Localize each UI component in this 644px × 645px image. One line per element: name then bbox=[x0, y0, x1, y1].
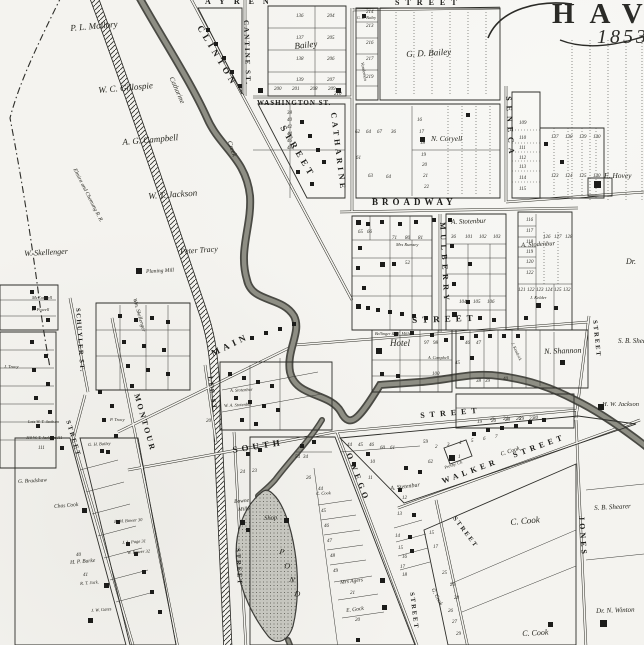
street-canal-east: STREET bbox=[234, 548, 242, 586]
lot-label: 132 bbox=[563, 288, 571, 293]
lot-label: 11 bbox=[368, 476, 373, 481]
street-top-right: STREET bbox=[395, 0, 463, 7]
lot-label: 48 bbox=[287, 146, 292, 151]
lot-label: 27 bbox=[452, 620, 457, 625]
lot-label: 102 bbox=[479, 235, 487, 240]
lot-label: 201 bbox=[292, 87, 300, 92]
owner-c-cook-south: C. Cook bbox=[522, 629, 549, 638]
label-g-d-bailey-sm: G. D. Bailey bbox=[357, 17, 376, 21]
lot-label: 123 bbox=[551, 174, 559, 179]
lot-label: 67 bbox=[377, 130, 382, 135]
street-ayren: AYREN bbox=[205, 0, 278, 6]
lot-label: 5 bbox=[471, 439, 474, 444]
lot-label: 122 bbox=[526, 271, 534, 276]
lot-label: 63 bbox=[368, 174, 373, 179]
lot-label: 36 bbox=[451, 235, 456, 240]
lot-label: 110 bbox=[519, 136, 526, 141]
lot-label: 207 bbox=[327, 78, 335, 83]
lot-label: 113 bbox=[519, 165, 526, 170]
lot-label: 119 bbox=[526, 250, 533, 255]
lot-label: 98 bbox=[433, 341, 438, 346]
lot-label: 128 bbox=[565, 235, 573, 240]
lot-label: 13 bbox=[397, 512, 402, 517]
lot-label: 2 bbox=[435, 445, 438, 450]
lot-label: 97 bbox=[424, 341, 429, 346]
label-dr: Dr. bbox=[626, 258, 636, 266]
lot-label: 109 bbox=[519, 121, 527, 126]
lot-label: 204 bbox=[327, 14, 335, 19]
label-j-kelder: J. Kelder bbox=[530, 296, 547, 301]
lot-label: 40 bbox=[503, 377, 508, 382]
lot-label: 200 bbox=[274, 87, 282, 92]
lot-label: 36 bbox=[391, 130, 396, 135]
lot-label: 64 bbox=[366, 130, 371, 135]
lot-label: 3 bbox=[447, 443, 450, 448]
owner-c-cook-pond: C. Cook bbox=[316, 491, 331, 496]
lot-label: 47 bbox=[476, 341, 481, 346]
lot-label: 48 bbox=[330, 554, 335, 559]
label-wt-jackson-110-111: 110 W. T. Jackson 111 bbox=[26, 436, 63, 440]
map-linework bbox=[0, 0, 644, 645]
lot-label: 217 bbox=[366, 57, 374, 62]
lot-label: 112 bbox=[519, 156, 526, 161]
lot-label: 18 bbox=[420, 141, 425, 146]
lot-label: 214 bbox=[366, 10, 374, 15]
lot-label: 44 bbox=[287, 132, 292, 137]
lot-label: 219 bbox=[366, 75, 374, 80]
lot-label: 10 bbox=[370, 460, 375, 465]
lot-label: 20 bbox=[206, 419, 211, 424]
lot-label: 124 bbox=[565, 174, 573, 179]
label-pond-d: D bbox=[294, 590, 301, 599]
lot-label: 12 bbox=[402, 496, 407, 501]
lot-label: 111 bbox=[519, 146, 526, 151]
lot-label: 46 bbox=[324, 524, 329, 529]
lot-label: 46 bbox=[465, 341, 470, 346]
lot-label: 20 bbox=[422, 163, 427, 168]
lot-label: 25 bbox=[442, 571, 447, 576]
lot-label: 137 bbox=[296, 36, 304, 41]
lot-label: 140 bbox=[593, 174, 601, 179]
lot-label: 46 bbox=[287, 139, 292, 144]
lot-label: 26 bbox=[306, 476, 311, 481]
lot-label: 80 bbox=[405, 236, 410, 241]
lot-label: 16 bbox=[417, 118, 422, 123]
lot-label: 17 bbox=[433, 545, 438, 550]
street-cantine: CANTINE ST. bbox=[242, 20, 251, 86]
lot-label: 17 bbox=[400, 565, 405, 570]
label-a-campbell: A. Campbell bbox=[428, 356, 449, 360]
lot-label: 34 bbox=[303, 455, 308, 460]
lot-label: 15 bbox=[398, 546, 403, 551]
lot-label: 138 bbox=[296, 57, 304, 62]
lot-label: 139 bbox=[296, 78, 304, 83]
lot-label: 26 bbox=[448, 609, 453, 614]
lot-label: 29 bbox=[519, 417, 524, 422]
owner-e-hovey: E. Hovey bbox=[604, 172, 631, 180]
lot-label: 140 bbox=[593, 135, 601, 140]
lot-label: 23 bbox=[252, 469, 257, 474]
lot-label: 122 bbox=[527, 288, 535, 293]
lot-label: 120 bbox=[526, 260, 534, 265]
lot-label: 101 bbox=[465, 235, 473, 240]
lot-label: 41 bbox=[83, 573, 88, 578]
lot-label: 40 bbox=[76, 553, 81, 558]
roads-fill bbox=[70, 0, 644, 645]
lot-label: 29 bbox=[456, 632, 461, 637]
lot-label: 38 bbox=[287, 111, 292, 116]
label-mills: Mills bbox=[238, 507, 250, 513]
lot-label: 81 bbox=[418, 236, 423, 241]
lot-label: 123 bbox=[536, 288, 544, 293]
label-pond-o: O bbox=[284, 562, 291, 571]
lot-label: 138 bbox=[565, 135, 573, 140]
lot-label: 62 bbox=[355, 130, 360, 135]
lot-label: 28 bbox=[505, 418, 510, 423]
lot-label: 105 bbox=[473, 300, 481, 305]
lot-label: 100 bbox=[432, 372, 440, 377]
lot-label: 21 bbox=[423, 174, 428, 179]
lot-label: 205 bbox=[327, 36, 335, 41]
lot-label: 38 bbox=[476, 379, 481, 384]
lot-label: 40 bbox=[287, 118, 292, 123]
lot-label: 19 bbox=[477, 420, 482, 425]
lot-label: 117 bbox=[526, 229, 533, 234]
lot-label: 45 bbox=[455, 361, 460, 366]
lot-label: 125 bbox=[554, 288, 562, 293]
lot-label: 30 bbox=[533, 416, 538, 421]
lot-label: 104 bbox=[459, 300, 467, 305]
lot-label: 61 bbox=[390, 446, 395, 451]
lot-label: 7 bbox=[495, 435, 498, 440]
lot-label: 66 bbox=[367, 230, 372, 235]
lot-label: 15 bbox=[429, 531, 434, 536]
owner-a-stotenbur: A. Stotenbur bbox=[451, 218, 486, 226]
lot-label: 114 bbox=[519, 176, 526, 181]
lot-label: 46 bbox=[369, 443, 374, 448]
lot-label: 115 bbox=[519, 187, 526, 192]
lot-label: 127 bbox=[554, 235, 562, 240]
lot-label: 19 bbox=[421, 153, 426, 158]
lot-label: 6 bbox=[483, 437, 486, 442]
lot-label: 54 bbox=[295, 455, 300, 460]
lot-label: 116 bbox=[526, 218, 533, 223]
label-lots-wt-jackson: Lots W. T. Jackson bbox=[28, 420, 59, 424]
canal-boundary-dashdot bbox=[10, 0, 62, 368]
lot-label: 121 bbox=[518, 288, 526, 293]
lot-label: 60 bbox=[380, 446, 385, 451]
street-jones: JONES bbox=[577, 516, 588, 557]
lot-label: 45 bbox=[321, 509, 326, 514]
lot-label: 14 bbox=[395, 534, 400, 539]
lot-label: 111 bbox=[38, 446, 45, 451]
lot-label: 124 bbox=[545, 288, 553, 293]
street-broadway: BROADWAY bbox=[372, 198, 457, 207]
lot-label: 139 bbox=[579, 135, 587, 140]
lot-label: 28 bbox=[454, 596, 459, 601]
lot-label: 126 bbox=[543, 235, 551, 240]
label-mcconnell: McConnell bbox=[32, 296, 52, 301]
lot-label: 125 bbox=[579, 174, 587, 179]
lot-label: 52 bbox=[405, 261, 410, 266]
map-date: 1853 bbox=[597, 26, 644, 49]
lot-label: 62 bbox=[428, 460, 433, 465]
owner-n-shannon: N. Shannon bbox=[544, 347, 582, 356]
label-bellinger: Bellinger & M. Mills bbox=[375, 332, 410, 336]
lot-label: 210 bbox=[334, 92, 342, 97]
lot-label: 42 bbox=[287, 125, 292, 130]
owner-dr-n-winton: Dr. N. Winton bbox=[596, 607, 635, 615]
lot-label: 64 bbox=[386, 175, 391, 180]
lot-label: 103 bbox=[493, 235, 501, 240]
lot-label: 136 bbox=[296, 14, 304, 19]
lot-label: 59 bbox=[423, 440, 428, 445]
label-hotel: Hotel bbox=[390, 339, 410, 348]
roads-outline bbox=[70, 0, 644, 645]
lot-label: 20 bbox=[355, 618, 360, 623]
lot-label: 44 bbox=[318, 487, 323, 492]
lot-label: 71 bbox=[392, 236, 397, 241]
label-shop: Shop bbox=[264, 515, 277, 522]
historical-plat-map: HAVA 1853 AYRENCLINTONCANTINE ST.WASHING… bbox=[0, 0, 644, 645]
street-washington: WASHINGTON ST. bbox=[257, 100, 331, 107]
lot-label: 17 bbox=[419, 130, 424, 135]
lot-label: 21 bbox=[350, 591, 355, 596]
lot-label: 18 bbox=[402, 573, 407, 578]
lot-label: 20 bbox=[450, 583, 455, 588]
lot-label: 213 bbox=[366, 24, 374, 29]
label-j-tracy: J. Tracy bbox=[4, 365, 19, 370]
lot-label: 1 bbox=[458, 455, 461, 460]
lot-label: 39 bbox=[485, 379, 490, 384]
lot-label: 49 bbox=[333, 569, 338, 574]
lot-label: 137 bbox=[551, 135, 559, 140]
owner-n-coryell: N. Coryell bbox=[431, 135, 462, 143]
label-mrs-rumsey: Mrs Rumsey bbox=[396, 243, 418, 248]
label-p-tracy: P. Tracy bbox=[110, 418, 125, 423]
lot-label: 45 bbox=[358, 443, 363, 448]
lot-label: 16 bbox=[402, 555, 407, 560]
lot-label: 47 bbox=[327, 539, 332, 544]
lot-label: 65 bbox=[358, 230, 363, 235]
lot-label: 4 bbox=[459, 441, 462, 446]
owner-s-b-shearer-north: S. B. Shearer bbox=[618, 338, 644, 345]
lot-label: 208 bbox=[310, 87, 318, 92]
lot-label: 106 bbox=[487, 300, 495, 305]
lot-label: 20 bbox=[491, 419, 496, 424]
lot-label: 118 bbox=[526, 240, 533, 245]
lot-label: 216 bbox=[366, 41, 374, 46]
owner-h-w-jackson: H. W. Jackson bbox=[602, 402, 639, 409]
label-l-powell: L. Powell bbox=[32, 308, 49, 313]
lot-label: 22 bbox=[424, 185, 429, 190]
lot-label: 44 bbox=[347, 443, 352, 448]
lot-label: 206 bbox=[327, 57, 335, 62]
lot-label: 61 bbox=[356, 156, 361, 161]
lot-label: 24 bbox=[240, 470, 245, 475]
